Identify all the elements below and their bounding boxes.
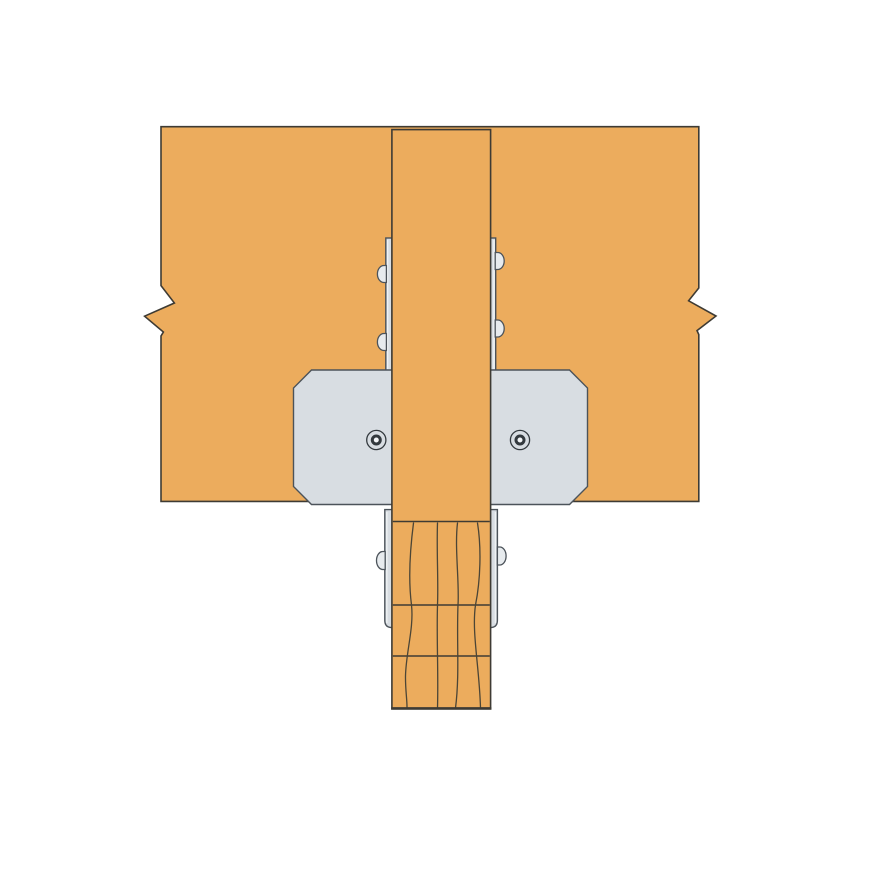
bolt-head-icon [495, 320, 504, 337]
connector-diagram [0, 0, 880, 880]
wood-grain-line [437, 523, 438, 708]
bolt-head-icon [495, 253, 504, 270]
illustration-canvas [0, 0, 880, 880]
ring-fastener-inner [372, 436, 380, 444]
bolt-head-icon [377, 334, 386, 351]
ring-fastener-inner [516, 436, 524, 444]
through-post [392, 130, 491, 709]
ring-fastener-right [510, 430, 529, 449]
ring-fastener-left [367, 430, 386, 449]
bolt-head-icon [377, 552, 386, 570]
bolt-head-icon [497, 547, 506, 565]
bolt-head-icon [377, 266, 386, 283]
